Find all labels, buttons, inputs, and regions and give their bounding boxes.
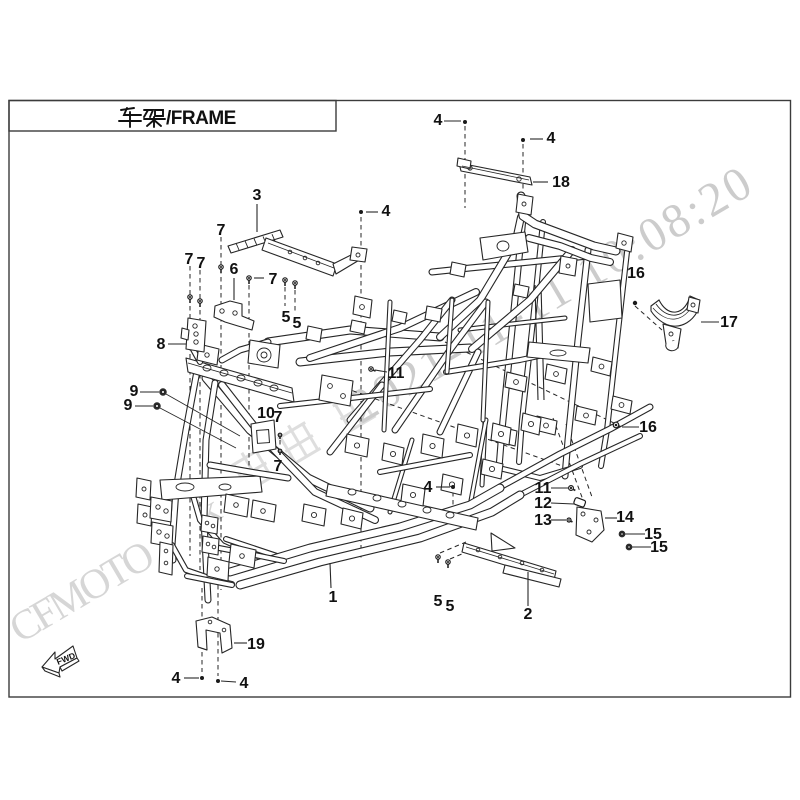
svg-text:/FRAME: /FRAME (166, 108, 236, 129)
svg-text:4: 4 (172, 670, 181, 687)
svg-text:12: 12 (534, 495, 552, 512)
svg-text:7: 7 (274, 458, 283, 475)
svg-text:14: 14 (616, 509, 634, 526)
svg-text:10: 10 (257, 405, 275, 422)
svg-text:18: 18 (552, 174, 570, 191)
svg-text:7: 7 (185, 251, 194, 268)
svg-text:16: 16 (639, 419, 657, 436)
svg-text:1: 1 (329, 589, 338, 606)
svg-text:4: 4 (382, 203, 391, 220)
svg-text:7: 7 (197, 255, 206, 272)
svg-text:6: 6 (230, 261, 239, 278)
svg-text:16: 16 (627, 265, 645, 282)
svg-text:7: 7 (269, 271, 278, 288)
svg-text:7: 7 (217, 222, 226, 239)
svg-text:13: 13 (534, 512, 552, 529)
svg-text:4: 4 (434, 112, 443, 129)
svg-text:17: 17 (720, 314, 738, 331)
svg-text:4: 4 (424, 479, 433, 496)
svg-text:19: 19 (247, 636, 265, 653)
svg-text:4: 4 (240, 675, 249, 692)
svg-text:9: 9 (124, 397, 133, 414)
svg-text:5: 5 (434, 593, 443, 610)
svg-text:4: 4 (547, 130, 556, 147)
svg-text:11: 11 (388, 365, 405, 382)
svg-text:2: 2 (524, 606, 533, 623)
svg-text:5: 5 (282, 309, 291, 326)
svg-text:7: 7 (274, 409, 283, 426)
svg-text:8: 8 (157, 336, 166, 353)
svg-text:5: 5 (293, 315, 302, 332)
svg-text:3: 3 (253, 187, 262, 204)
svg-text:15: 15 (650, 539, 668, 556)
svg-text:5: 5 (446, 598, 455, 615)
